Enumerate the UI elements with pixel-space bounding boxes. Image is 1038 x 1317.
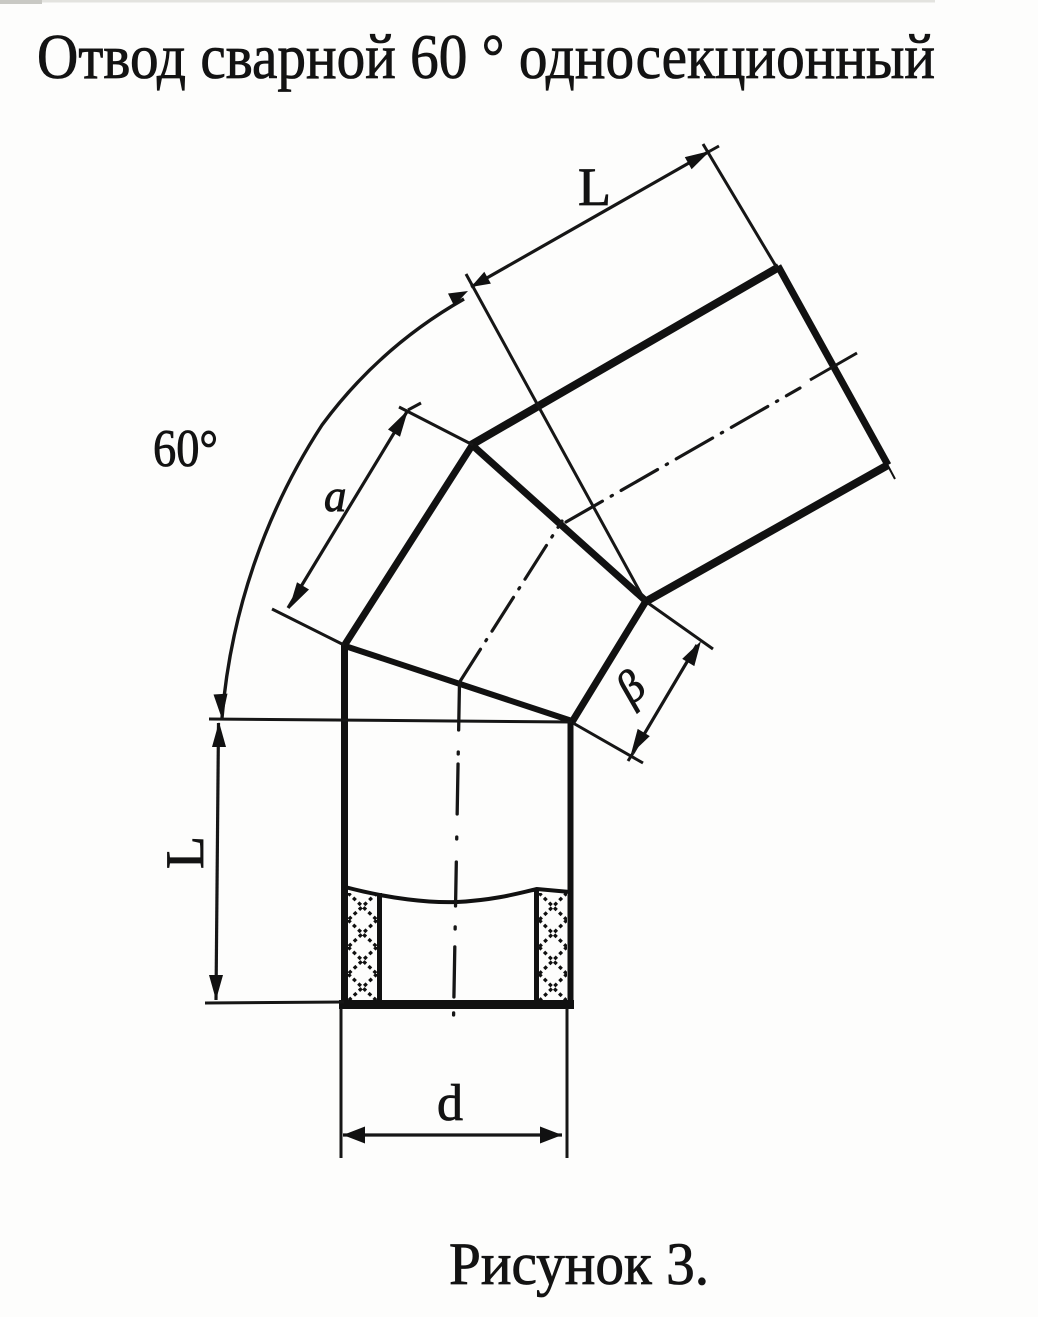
svg-text:L: L <box>155 836 215 869</box>
svg-text:Рисунок 3.: Рисунок 3. <box>449 1231 709 1297</box>
svg-text:a: a <box>324 471 347 521</box>
svg-text:L: L <box>578 157 611 217</box>
svg-text:60°: 60° <box>153 420 218 478</box>
svg-text:d: d <box>437 1075 463 1132</box>
svg-text:Отвод сварной 60 ° односекцион: Отвод сварной 60 ° односекционный <box>37 21 935 92</box>
